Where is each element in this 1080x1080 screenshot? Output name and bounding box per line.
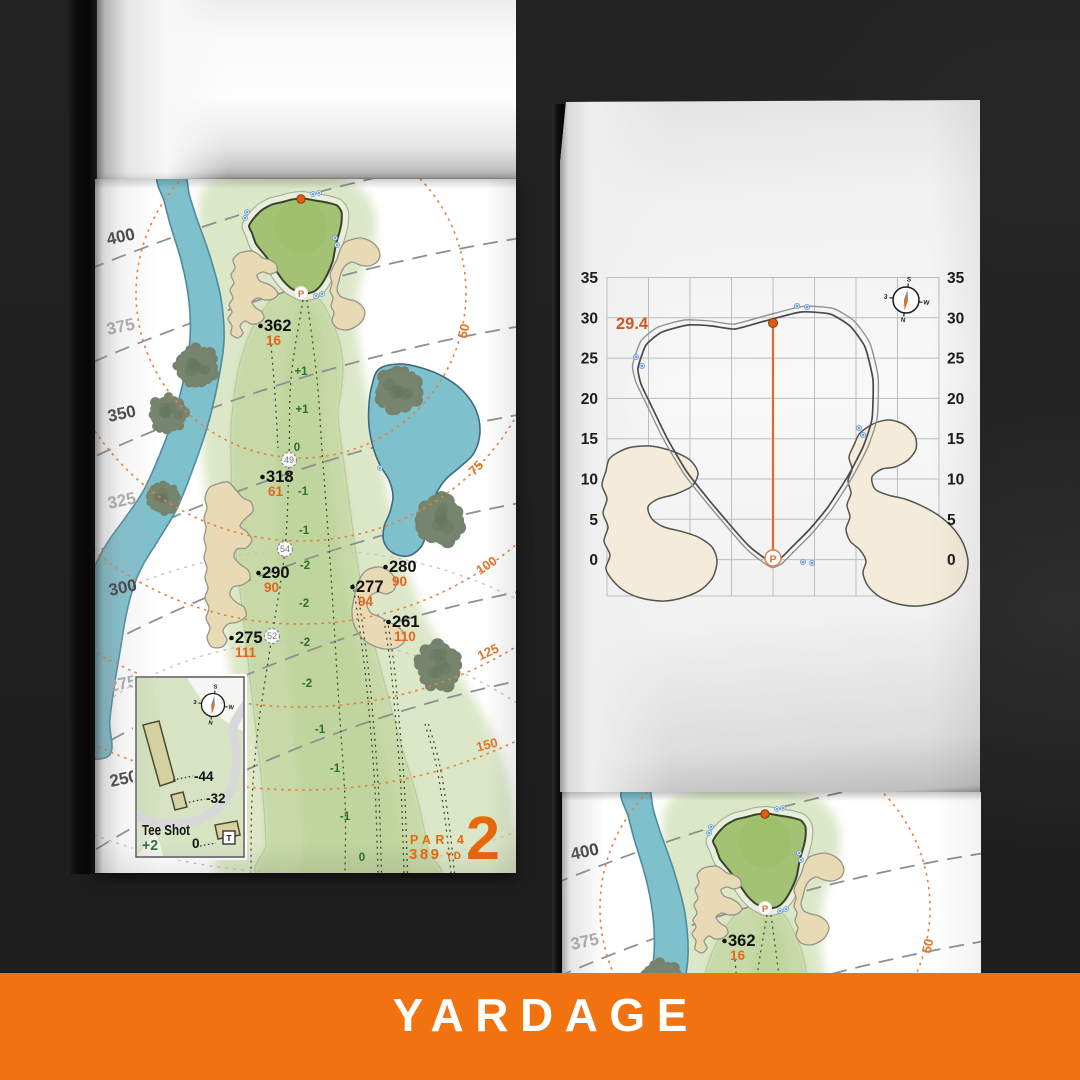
svg-text:25: 25	[581, 351, 599, 368]
svg-text:3: 3	[883, 294, 888, 301]
svg-text:30: 30	[581, 310, 598, 327]
svg-text:20: 20	[581, 391, 598, 408]
svg-text:S: S	[906, 276, 912, 284]
svg-text:35: 35	[581, 270, 599, 287]
svg-text:29.4: 29.4	[616, 315, 649, 333]
svg-text:5: 5	[589, 512, 598, 529]
svg-text:15: 15	[581, 431, 599, 448]
svg-text:N: N	[900, 317, 906, 325]
svg-text:10: 10	[581, 472, 598, 489]
svg-text:P: P	[769, 554, 776, 566]
svg-text:0: 0	[589, 552, 598, 569]
